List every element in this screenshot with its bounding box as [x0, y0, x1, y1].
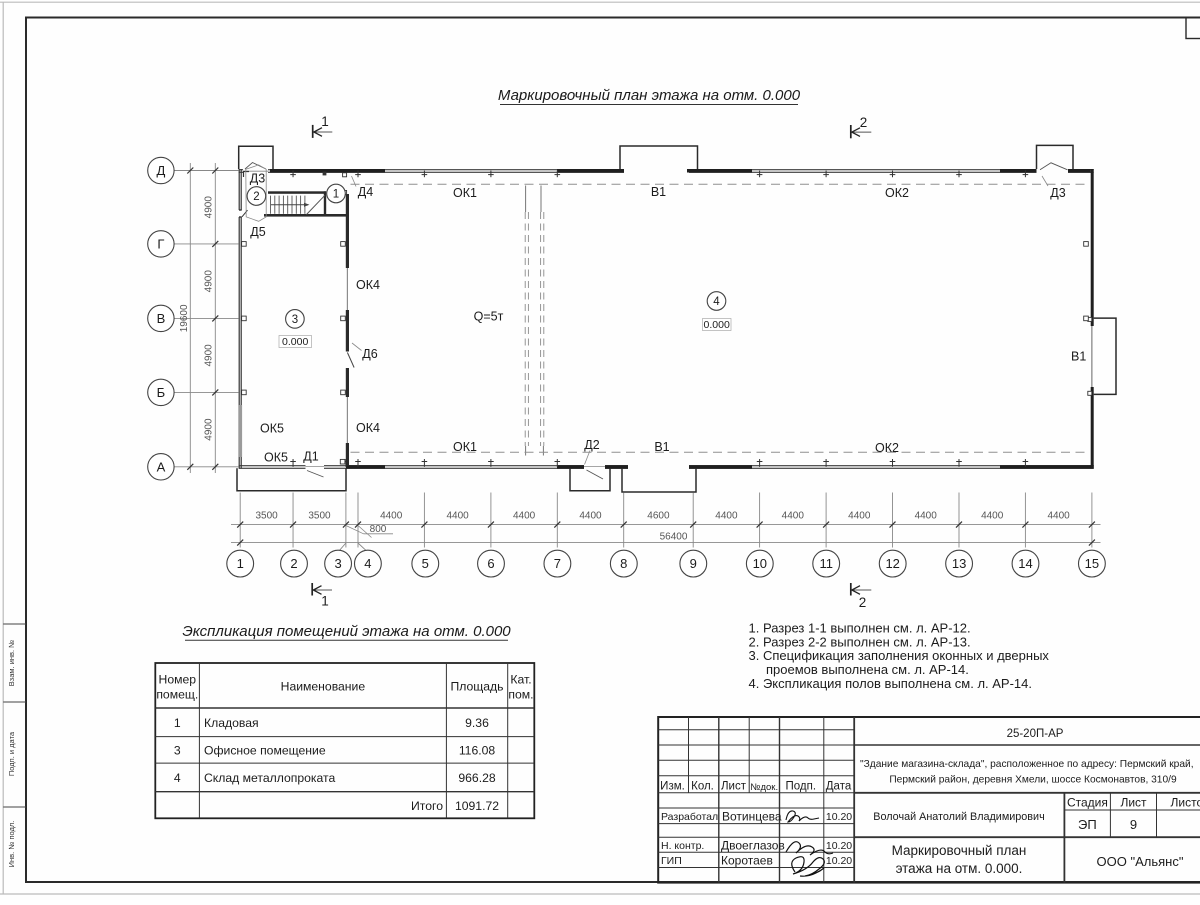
svg-text:Разработал: Разработал [661, 811, 718, 823]
svg-text:4400: 4400 [981, 511, 1004, 522]
svg-text:Лист: Лист [721, 780, 747, 792]
svg-text:56400: 56400 [660, 532, 688, 543]
svg-text:3: 3 [174, 744, 181, 758]
svg-text:Итого: Итого [411, 799, 443, 813]
svg-text:Д1: Д1 [303, 450, 318, 464]
svg-text:Д5: Д5 [250, 225, 265, 239]
svg-text:5: 5 [422, 556, 429, 571]
svg-text:Склад металлопроката: Склад металлопроката [204, 771, 335, 785]
svg-text:4900: 4900 [204, 196, 215, 219]
svg-text:6: 6 [487, 556, 494, 571]
svg-text:13: 13 [952, 556, 966, 571]
svg-text:14: 14 [1018, 556, 1032, 571]
svg-text:ОК4: ОК4 [356, 421, 380, 435]
svg-text:2: 2 [860, 115, 868, 130]
svg-text:ОК5: ОК5 [264, 451, 288, 465]
svg-text:Д6: Д6 [362, 347, 377, 361]
svg-text:9: 9 [1130, 817, 1137, 832]
svg-text:1091.72: 1091.72 [455, 799, 499, 813]
svg-text:Кладовая: Кладовая [204, 716, 259, 730]
svg-text:1. Разрез 1-1 выполнен см. л.: 1. Разрез 1-1 выполнен см. л. АР-12. [749, 620, 971, 635]
svg-text:11: 11 [819, 556, 833, 571]
svg-text:1: 1 [321, 594, 329, 609]
svg-text:В1: В1 [1071, 350, 1086, 364]
svg-text:4400: 4400 [915, 511, 938, 522]
svg-text:966.28: 966.28 [458, 771, 495, 785]
svg-text:проемов выполнена см. л. АР-14: проемов выполнена см. л. АР-14. [766, 662, 969, 677]
svg-text:4400: 4400 [715, 511, 738, 522]
svg-text:4900: 4900 [204, 418, 215, 441]
svg-text:4400: 4400 [380, 511, 403, 522]
svg-text:9: 9 [690, 556, 697, 571]
svg-text:ОК5: ОК5 [260, 422, 284, 436]
svg-text:Д3: Д3 [1050, 186, 1065, 200]
svg-text:Коротаев: Коротаев [721, 854, 773, 868]
svg-text:Д3: Д3 [250, 171, 265, 185]
svg-text:2: 2 [253, 191, 259, 203]
svg-text:4: 4 [174, 771, 181, 785]
svg-text:Номер: Номер [159, 672, 197, 686]
svg-text:3: 3 [334, 556, 341, 571]
svg-text:4400: 4400 [513, 511, 536, 522]
svg-text:Маркировочный план: Маркировочный план [892, 843, 1027, 858]
svg-text:ОК2: ОК2 [875, 441, 899, 455]
svg-text:15: 15 [1085, 556, 1099, 571]
svg-text:Экспликация помещений этажа на: Экспликация помещений этажа на отм. 0.00… [182, 623, 511, 640]
svg-text:Пермский район, деревня Хмели,: Пермский район, деревня Хмели, шоссе Кос… [889, 774, 1177, 785]
svg-text:ОК2: ОК2 [885, 186, 909, 200]
svg-text:пом.: пом. [508, 687, 533, 701]
svg-text:Стадия: Стадия [1067, 795, 1108, 809]
svg-text:Инв. № подл.: Инв. № подл. [7, 821, 16, 868]
svg-text:1: 1 [321, 114, 329, 129]
svg-text:Офисное помещение: Офисное помещение [204, 744, 326, 758]
svg-text:ГИП: ГИП [661, 855, 682, 867]
svg-text:этажа на отм. 0.000.: этажа на отм. 0.000. [896, 861, 1023, 876]
svg-text:1: 1 [174, 716, 181, 730]
svg-text:Подп.: Подп. [786, 780, 817, 792]
svg-text:№док.: №док. [750, 782, 778, 793]
svg-text:ОК1: ОК1 [453, 186, 477, 200]
svg-text:4900: 4900 [204, 344, 215, 367]
svg-text:4400: 4400 [848, 511, 871, 522]
svg-text:Д4: Д4 [358, 185, 373, 199]
svg-text:Наименование: Наименование [281, 679, 366, 693]
svg-text:4900: 4900 [204, 270, 215, 293]
svg-text:10.20: 10.20 [826, 840, 852, 852]
svg-text:Н. контр.: Н. контр. [661, 840, 704, 852]
svg-text:0.000: 0.000 [282, 336, 308, 348]
svg-text:Q=5т: Q=5т [474, 309, 504, 323]
svg-text:Листов: Листов [1171, 795, 1200, 809]
svg-text:Кат.: Кат. [510, 672, 531, 686]
svg-text:Дата: Дата [826, 780, 852, 792]
svg-text:10.20: 10.20 [826, 855, 852, 867]
svg-text:4400: 4400 [579, 511, 602, 522]
svg-text:ЭП: ЭП [1078, 817, 1097, 832]
svg-text:Взам. инв. №: Взам. инв. № [7, 640, 16, 686]
svg-text:В1: В1 [654, 440, 669, 454]
svg-text:10.20: 10.20 [826, 811, 852, 823]
svg-text:Вотинцева: Вотинцева [722, 809, 782, 823]
svg-text:12: 12 [885, 556, 899, 571]
svg-text:4600: 4600 [647, 511, 670, 522]
svg-text:4: 4 [713, 296, 720, 308]
svg-text:800: 800 [370, 524, 387, 535]
svg-text:помещ.: помещ. [156, 687, 198, 701]
svg-text:9.36: 9.36 [465, 716, 489, 730]
svg-text:25-20П-АР: 25-20П-АР [1007, 728, 1064, 740]
svg-text:Изм.: Изм. [660, 780, 685, 792]
svg-text:Б: Б [157, 385, 166, 400]
svg-text:Подп. и дата: Подп. и дата [7, 731, 16, 776]
svg-text:Д: Д [156, 163, 165, 178]
svg-text:7: 7 [554, 556, 561, 571]
svg-text:А: А [157, 459, 166, 474]
svg-text:Площадь: Площадь [450, 679, 503, 693]
svg-text:3500: 3500 [255, 511, 278, 522]
svg-text:10: 10 [753, 556, 767, 571]
svg-text:3500: 3500 [308, 511, 331, 522]
svg-text:2: 2 [859, 595, 867, 610]
svg-text:ООО "Альянс": ООО "Альянс" [1097, 854, 1184, 869]
svg-text:В1: В1 [651, 185, 666, 199]
svg-text:116.08: 116.08 [459, 744, 496, 758]
svg-text:3: 3 [292, 314, 298, 326]
svg-text:Двоеглазов: Двоеглазов [721, 838, 785, 852]
svg-text:4400: 4400 [446, 511, 469, 522]
svg-text:Маркировочный план этажа на от: Маркировочный план этажа на отм. 0.000 [498, 87, 801, 104]
svg-text:8: 8 [620, 556, 627, 571]
svg-text:4: 4 [364, 556, 371, 571]
svg-text:Д2: Д2 [584, 438, 599, 452]
svg-text:"Здание магазина-склада", расп: "Здание магазина-склада", расположенное … [860, 759, 1194, 770]
svg-text:4. Экспликация полов выполнена: 4. Экспликация полов выполнена см. л. АР… [749, 676, 1033, 691]
svg-text:1: 1 [333, 189, 339, 201]
svg-text:Г: Г [157, 237, 164, 252]
svg-text:2: 2 [290, 556, 297, 571]
svg-text:Кол.: Кол. [691, 780, 714, 792]
svg-text:3. Спецификация заполнения око: 3. Спецификация заполнения оконных и две… [749, 648, 1050, 663]
svg-text:Лист: Лист [1120, 795, 1147, 809]
svg-text:1: 1 [237, 556, 244, 571]
svg-text:4400: 4400 [1047, 511, 1070, 522]
svg-text:Волочай Анатолий Владимирович: Волочай Анатолий Владимирович [873, 811, 1044, 823]
svg-text:ОК4: ОК4 [356, 278, 380, 292]
svg-text:19600: 19600 [179, 304, 190, 332]
svg-text:4400: 4400 [782, 511, 805, 522]
svg-text:0.000: 0.000 [704, 319, 730, 331]
svg-text:В: В [157, 311, 166, 326]
svg-text:ОК1: ОК1 [453, 440, 477, 454]
